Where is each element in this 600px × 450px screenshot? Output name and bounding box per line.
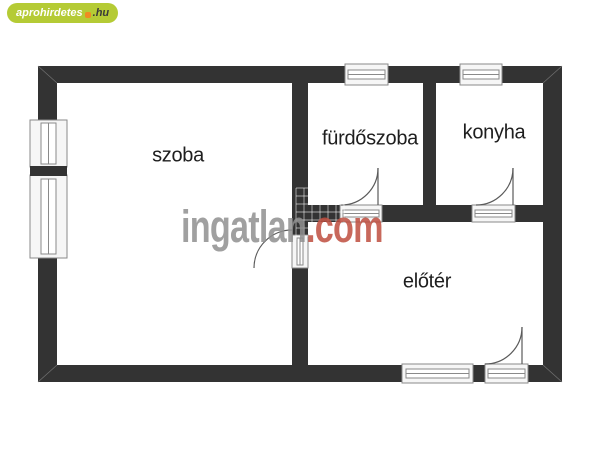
wall-furdoszoba-konyha: [423, 83, 436, 205]
room-label-eloter: előtér: [403, 271, 451, 294]
window-szoba-upper-icon: [30, 120, 67, 167]
logo-tld: .hu: [93, 7, 110, 19]
window-furdoszoba-icon: [345, 64, 388, 85]
logo-orange-dot-icon: [85, 12, 91, 18]
window-mullion: [30, 166, 67, 176]
floor-plan-image: szoba fürdőszoba konyha előtér ingatlan.…: [0, 0, 600, 450]
door-swing-entry-icon: [485, 327, 522, 364]
window-eloter-icon: [402, 364, 473, 383]
aprohirdetes-logo-badge: aprohirdetes .hu: [7, 3, 118, 23]
watermark-tld: .com: [306, 201, 383, 252]
wall-right: [543, 66, 562, 382]
watermark-ingatlan-com: ingatlan.com: [181, 201, 383, 253]
door-swing-konyha-icon: [476, 168, 513, 205]
window-konyha-icon: [460, 64, 502, 85]
door-threshold-entry-icon: [485, 364, 528, 383]
room-label-konyha: konyha: [463, 122, 526, 145]
door-swing-furdoszoba-icon: [341, 168, 378, 205]
window-szoba-lower-icon: [30, 175, 67, 258]
room-label-furdoszoba: fürdőszoba: [322, 128, 418, 151]
door-threshold-konyha-icon: [472, 205, 515, 222]
watermark-name: ingatlan: [181, 201, 306, 252]
logo-site-name: aprohirdetes: [16, 7, 83, 19]
room-label-szoba: szoba: [152, 145, 204, 168]
wall-bottom: [38, 365, 562, 382]
